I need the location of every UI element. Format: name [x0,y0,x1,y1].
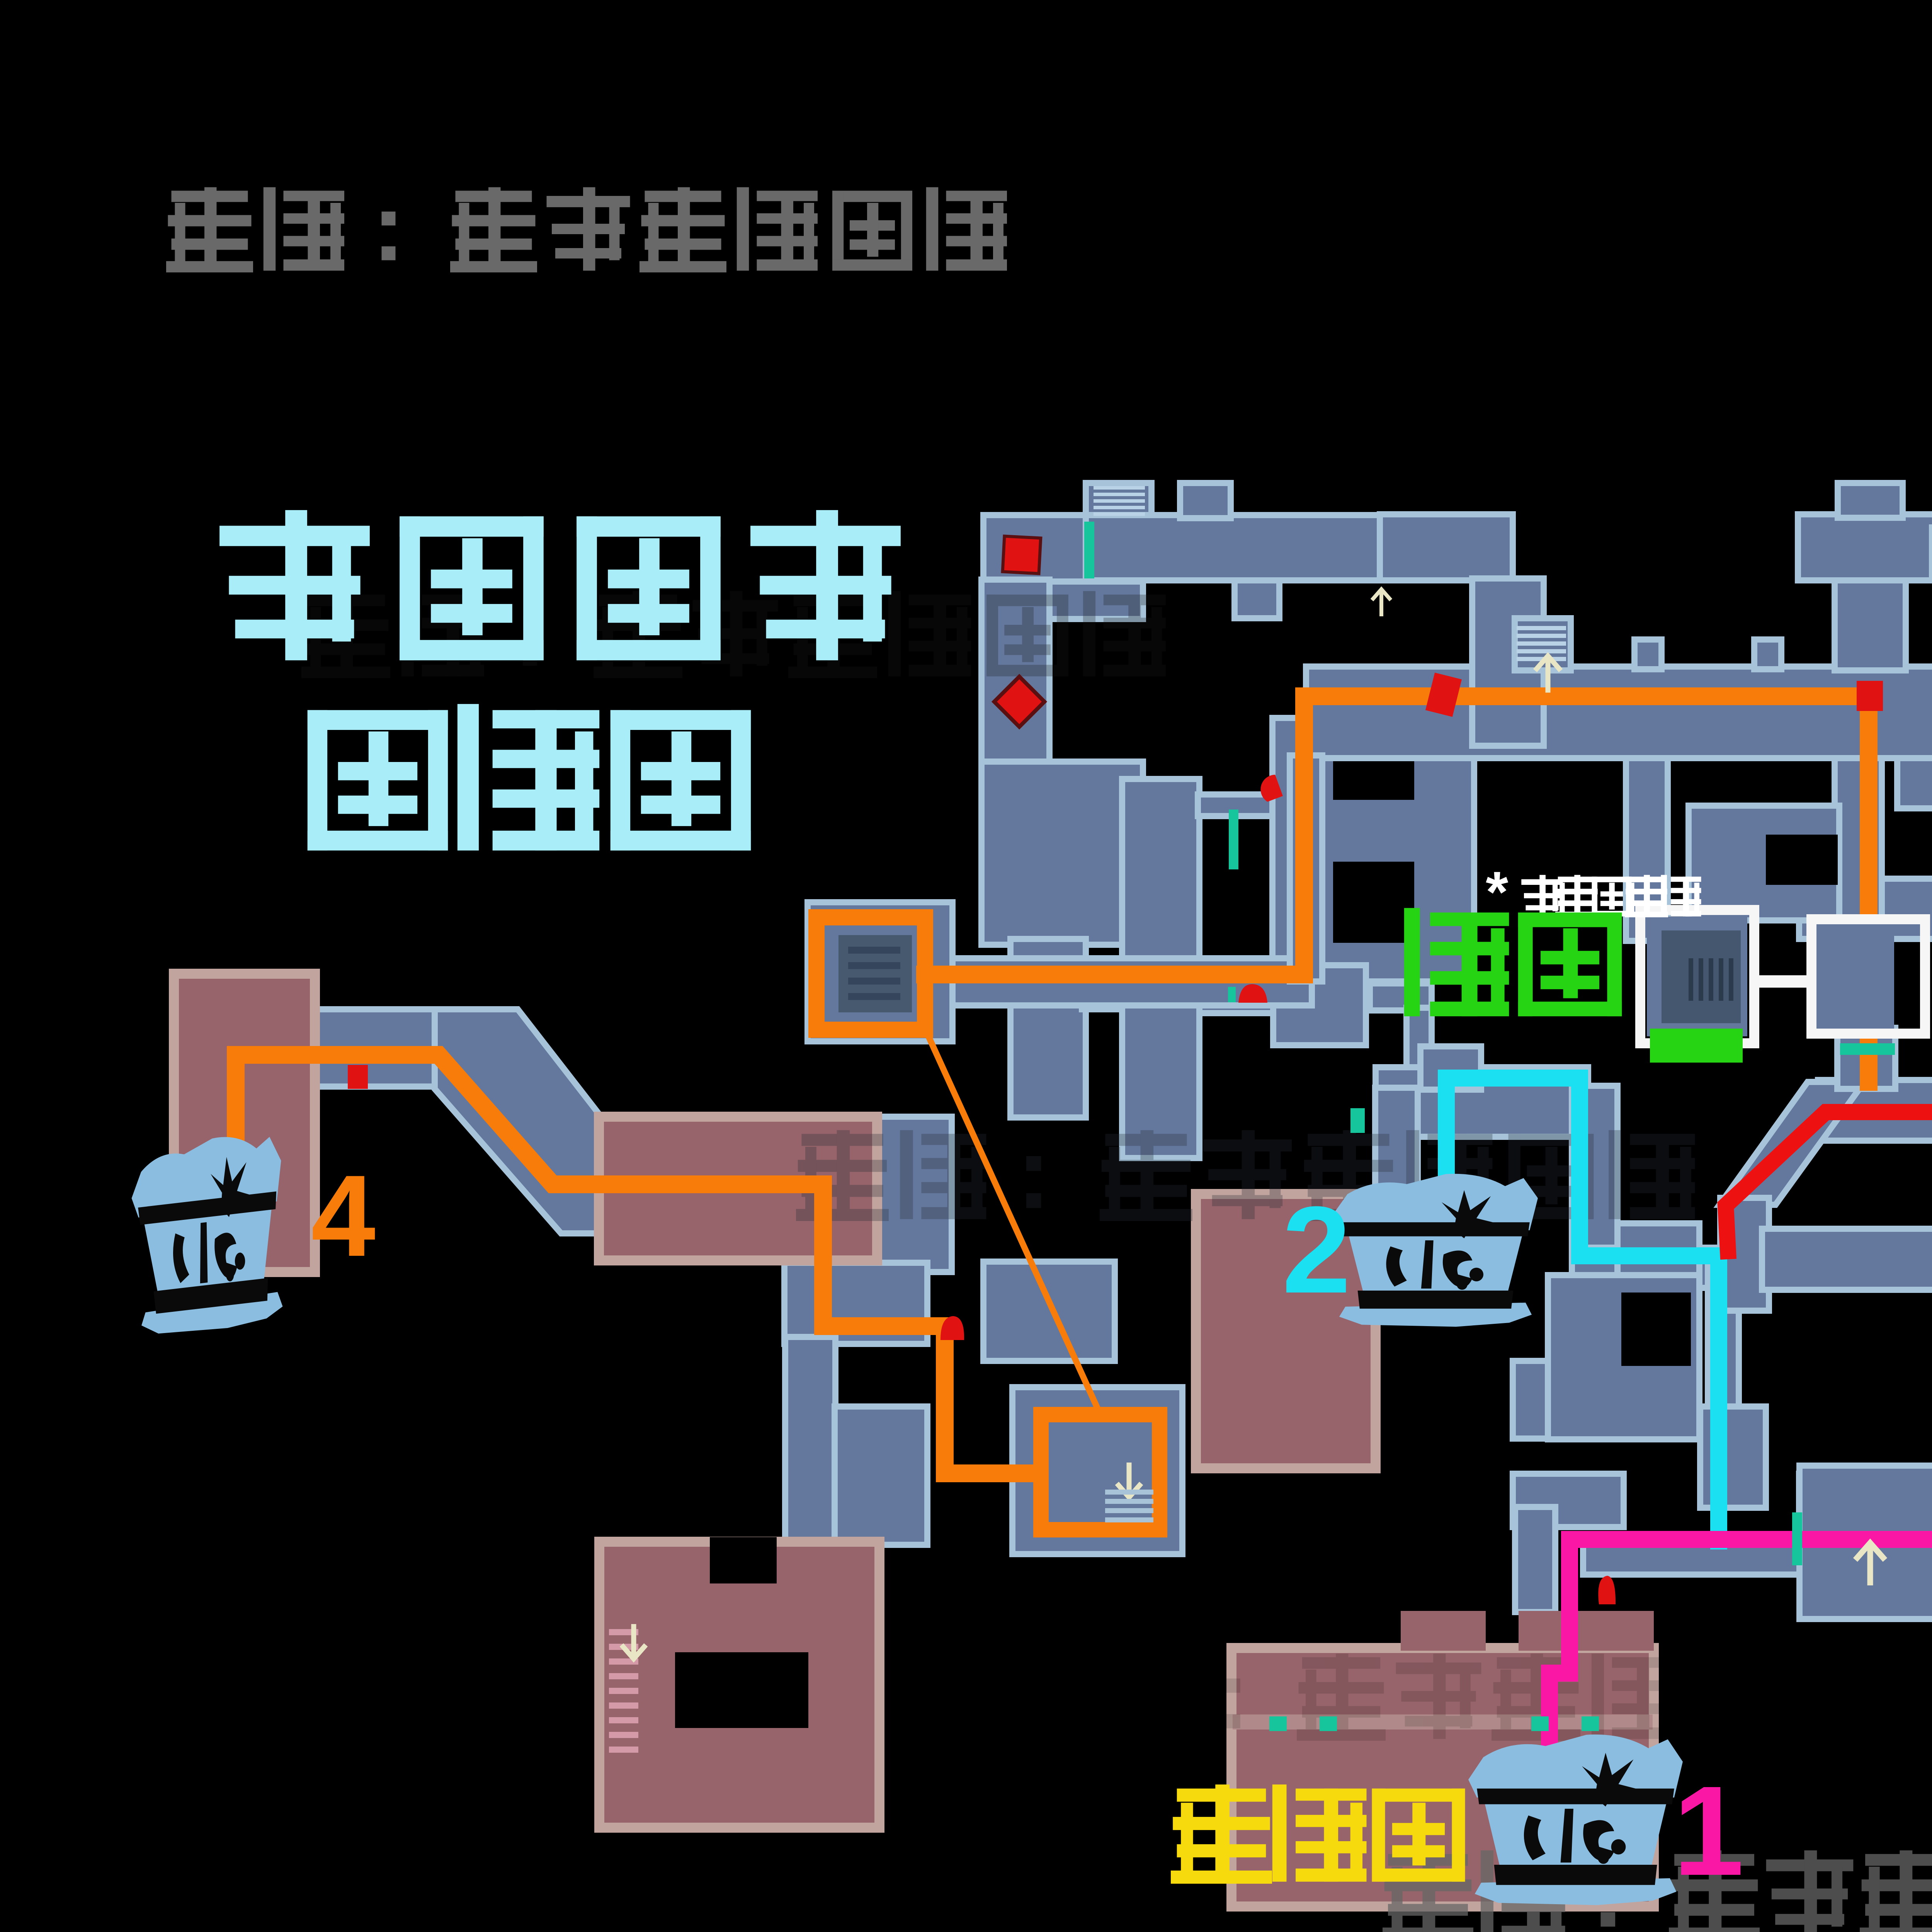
svg-text:1: 1 [1673,1759,1744,1902]
svg-text:2: 2 [1282,1180,1351,1319]
svg-text:4: 4 [311,1151,376,1281]
